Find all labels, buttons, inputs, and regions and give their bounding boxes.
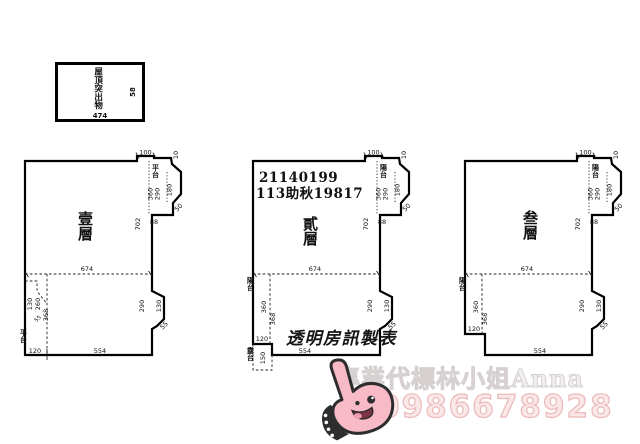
dim-balcony-2: 290 — [594, 188, 602, 200]
dim-notch-b: 130 — [595, 300, 603, 312]
dim-terrace-height: 150 — [259, 352, 267, 364]
dim-chamfer: 50 — [173, 202, 185, 214]
floor-label-1: 壹層 — [76, 210, 94, 242]
floor-label-2: 貳層 — [301, 215, 319, 247]
rooftop-width-dim: 474 — [93, 112, 108, 120]
dim-wall-height: 702 — [362, 218, 370, 230]
floor-label-3: 叁層 — [521, 209, 539, 241]
dim-balcony-2: 290 — [154, 188, 162, 200]
plan2-doc-ref: 113助秋19817 — [256, 185, 363, 202]
balcony-label: 陽台 — [592, 163, 601, 179]
dim-corner: 120 — [256, 335, 268, 343]
dim-platform-1: 130 — [26, 298, 34, 310]
rooftop-structure-box: 屋頂突出物 474 58 — [55, 62, 145, 122]
dim-notch-b: 130 — [155, 300, 163, 312]
dim-platform-4: 368 — [42, 309, 50, 321]
terrace-label: 露台 — [246, 346, 256, 362]
maker-stamp-text: 透明房訊製表 — [286, 324, 397, 349]
dim-platform-2: 368 — [269, 313, 277, 325]
dim-top-step: 10 — [400, 151, 408, 159]
platform-label: 平台 — [20, 329, 29, 344]
dim-platform-2: 260 — [34, 298, 42, 310]
dim-balcony-3: 180 — [606, 184, 614, 196]
dim-balcony-width: 88 — [378, 218, 386, 226]
platform-label: 陽台 — [459, 276, 468, 292]
sticker-group — [316, 355, 396, 442]
plan2-doc-number: 21140199 — [259, 170, 338, 186]
hand-shape — [327, 355, 395, 436]
balcony-label: 陽台 — [380, 163, 389, 179]
dim-balcony-2: 290 — [382, 188, 390, 200]
thumbs-up-sticker — [304, 349, 413, 444]
dim-platform-2: 368 — [481, 313, 489, 325]
dim-wall-height: 702 — [134, 218, 142, 230]
phone-watermark-text: 0986678928 — [378, 389, 614, 425]
rooftop-height-dim: 58 — [129, 87, 137, 97]
dim-notch-a: 290 — [366, 300, 374, 312]
platform-label: 陽台 — [247, 276, 256, 292]
dim-platform-1: 360 — [260, 301, 268, 313]
dim-mid-width: 674 — [521, 265, 533, 273]
dim-corner: 120 — [29, 347, 41, 355]
dim-bottom-width: 554 — [94, 347, 106, 355]
dim-balcony-width: 88 — [590, 218, 598, 226]
scanned-floorplan-page: 屋頂突出物 474 58 100 10 平台 360 290 180 702 8… — [0, 0, 640, 444]
dim-top-step: 10 — [612, 151, 620, 159]
floor-plan-1: 100 10 平台 360 290 180 702 88 50 674 290 … — [15, 148, 200, 373]
dim-corner: 120 — [468, 325, 480, 333]
dim-bottom-width: 554 — [534, 347, 546, 355]
dim-mid-width: 674 — [309, 265, 321, 273]
dim-mid-width: 674 — [81, 265, 93, 273]
dim-chamfer: 50 — [401, 202, 413, 214]
floor-plan-3: 100 10 陽台 360 290 180 702 88 50 674 290 … — [455, 148, 640, 373]
dim-wall-height: 702 — [574, 218, 582, 230]
dim-top-width: 100 — [579, 149, 591, 157]
dim-balcony-3: 180 — [394, 184, 402, 196]
balcony-label: 平台 — [152, 164, 161, 179]
dim-notch-b: 130 — [383, 300, 391, 312]
rooftop-structure-label: 屋頂突出物 — [92, 67, 104, 110]
dim-platform-1: 360 — [472, 301, 480, 313]
dim-balcony-3: 180 — [166, 184, 174, 196]
dim-notch-a: 290 — [578, 300, 586, 312]
dim-chamfer: 50 — [613, 202, 625, 214]
dim-top-width: 100 — [139, 149, 151, 157]
dim-top-width: 100 — [367, 149, 379, 157]
dim-balcony-width: 88 — [150, 218, 158, 226]
dim-notch-a: 290 — [138, 300, 146, 312]
dim-top-step: 10 — [172, 151, 180, 159]
